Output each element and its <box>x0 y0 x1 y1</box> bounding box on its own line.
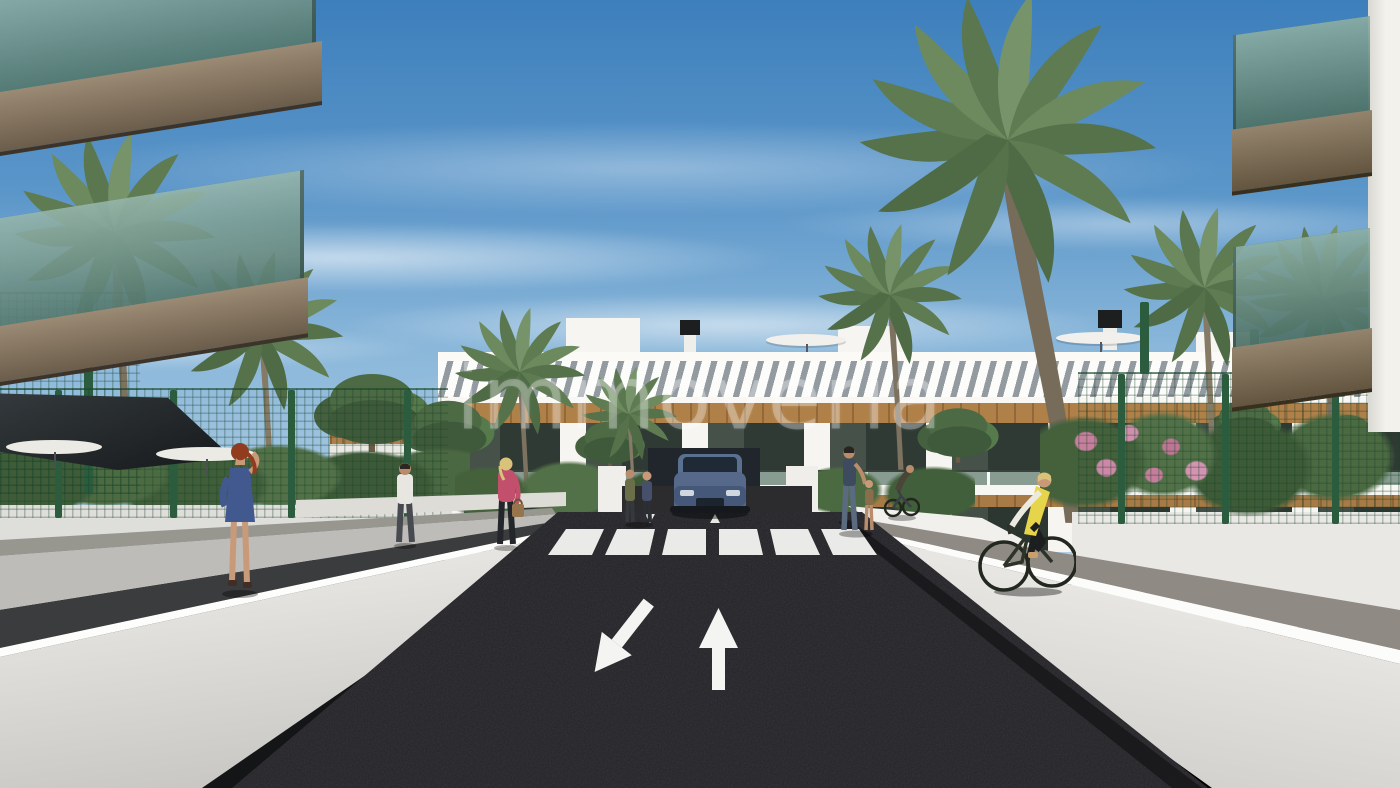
watermark-text: immoveria <box>456 347 945 450</box>
cyclist-yellow-vest <box>978 438 1076 598</box>
pedestrians-adult-and-child <box>834 446 882 538</box>
pedestrian-woman-pink-top <box>486 456 528 552</box>
pedestrian-man-white-shirt <box>388 462 422 550</box>
pedestrians-pair <box>620 468 658 528</box>
rendering-scene: immoveria <box>0 0 1400 788</box>
pedestrian-woman-blue-dress <box>212 438 268 600</box>
cyclist-small <box>884 460 920 522</box>
car <box>664 446 756 520</box>
